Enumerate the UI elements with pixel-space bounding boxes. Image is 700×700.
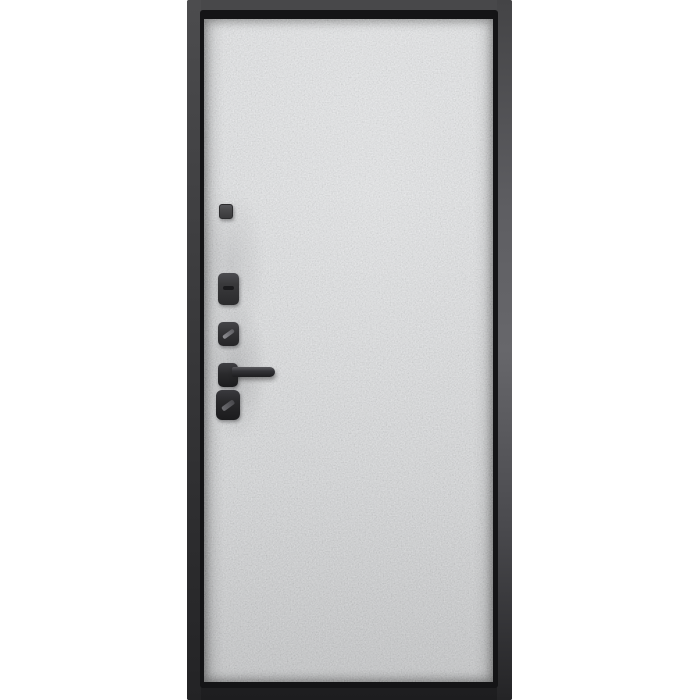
lower-lock-cylinder [216,390,240,420]
upper-keyhole-icon [222,329,235,340]
concrete-panel [204,19,493,682]
product-photo-scene [0,0,700,700]
lower-keyhole-icon [221,399,235,411]
door-frame-right-stile [497,0,512,700]
upper-lock-cylinder [218,322,239,346]
door-handle-lever [232,367,275,377]
peephole [219,204,233,219]
thumbturn-escutcheon [218,273,239,305]
thumbturn-slot [223,286,234,290]
door-frame-left-stile [187,0,201,700]
entry-door [187,0,512,700]
panel-lighting-vignette [204,19,493,682]
